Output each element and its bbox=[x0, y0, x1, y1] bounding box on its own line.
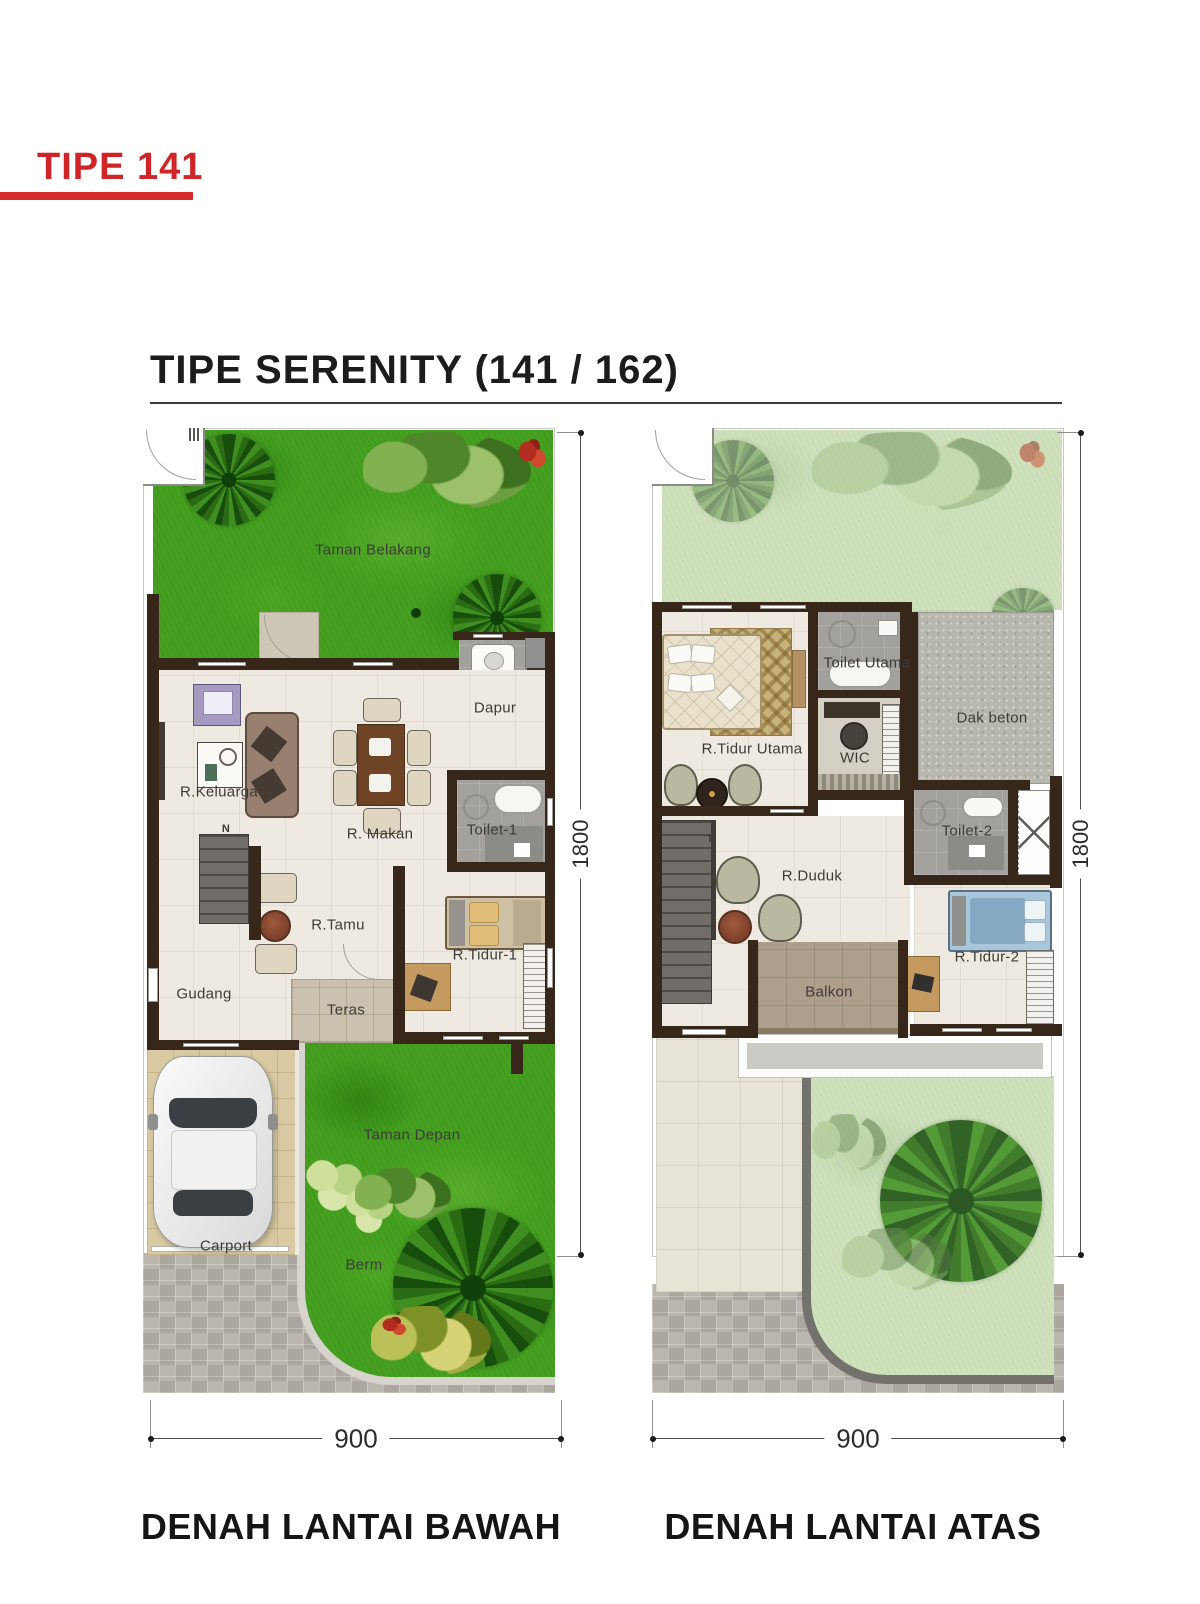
master-bed-icon bbox=[662, 634, 762, 730]
room-label-r-tidur-2: R.Tidur-2 bbox=[955, 949, 1020, 966]
dining-chair-icon bbox=[333, 730, 357, 766]
room-label-berm: Berm bbox=[345, 1257, 382, 1274]
bed-icon bbox=[948, 890, 1052, 952]
shrub-bed-icon bbox=[355, 1168, 451, 1222]
caption-upper-floor: DENAH LANTAI ATAS bbox=[664, 1506, 1041, 1548]
shrub-bed-icon bbox=[812, 1114, 886, 1172]
garden-drain-icon bbox=[411, 608, 421, 618]
window-icon bbox=[942, 1028, 982, 1032]
interior-wall bbox=[748, 940, 758, 1038]
void-shaft bbox=[1018, 790, 1050, 875]
exterior-wall bbox=[652, 602, 662, 1038]
window-icon bbox=[353, 662, 393, 666]
room-label-carport: Carport bbox=[200, 1238, 252, 1255]
shrub-bed-icon bbox=[363, 432, 531, 510]
basin-icon bbox=[840, 722, 868, 750]
interior-wall bbox=[447, 862, 555, 872]
room-label-r-duduk: R.Duduk bbox=[782, 868, 842, 885]
type-badge-underline bbox=[0, 192, 193, 200]
wardrobe-icon bbox=[1026, 950, 1054, 1028]
washbasin-icon bbox=[463, 794, 489, 820]
stairs-note-label: N bbox=[222, 823, 230, 835]
room-label-dapur: Dapur bbox=[474, 700, 516, 717]
exterior-wall bbox=[147, 658, 461, 670]
room-label-taman-depan: Taman Depan bbox=[364, 1127, 461, 1144]
wall-stub bbox=[511, 1044, 523, 1074]
window-icon bbox=[183, 1043, 239, 1047]
interior-wall bbox=[898, 940, 908, 1038]
lounge-chair-icon bbox=[716, 856, 760, 904]
lounge-chair-icon bbox=[758, 894, 802, 942]
console-icon bbox=[792, 650, 806, 708]
side-gate bbox=[143, 428, 205, 486]
window-icon bbox=[443, 1036, 483, 1040]
room-label-balkon: Balkon bbox=[805, 984, 853, 1001]
bed-icon bbox=[445, 896, 547, 950]
car-icon bbox=[153, 1056, 273, 1248]
window-icon bbox=[760, 605, 806, 609]
interior-wall bbox=[447, 770, 457, 872]
interior-wall bbox=[904, 875, 1062, 885]
dimension-width-lower: 900 bbox=[150, 1438, 562, 1439]
floor-plan-upper: R.Tidur Utama Toilet Utama WIC Dak beton… bbox=[652, 428, 1064, 1393]
lounge-chair-icon bbox=[728, 764, 762, 806]
shrub-bed-icon bbox=[842, 1228, 952, 1292]
window-icon bbox=[682, 1029, 726, 1035]
dimension-depth-lower: 1800 bbox=[580, 432, 581, 1256]
stairs-note-label: T bbox=[706, 833, 713, 845]
interior-wall bbox=[808, 612, 818, 806]
window-icon bbox=[547, 948, 553, 988]
dimension-depth-lower-value: 1800 bbox=[568, 810, 594, 879]
interior-wall bbox=[818, 690, 900, 698]
room-label-taman-belakang: Taman Belakang bbox=[315, 542, 431, 559]
shrub-bed-icon bbox=[812, 432, 1012, 512]
window-icon bbox=[547, 798, 553, 826]
toilet-fixture-icon bbox=[878, 620, 898, 636]
staircase bbox=[199, 834, 249, 924]
guest-chair-icon bbox=[255, 944, 297, 974]
floor-plan-sheet: { "page": { "badge": "TIPE 141", "title"… bbox=[0, 0, 1200, 1604]
dining-chair-icon bbox=[333, 770, 357, 806]
toilet-fixture-icon bbox=[968, 844, 986, 858]
room-label-r-keluarga: R.Keluarga bbox=[180, 784, 258, 801]
interior-wall bbox=[900, 602, 910, 794]
staircase bbox=[660, 820, 712, 1004]
dining-chair-icon bbox=[407, 730, 431, 766]
window-icon bbox=[996, 1028, 1032, 1032]
room-label-toilet-2: Toilet-2 bbox=[942, 823, 993, 840]
interior-wall bbox=[818, 790, 910, 800]
dining-chair-icon bbox=[407, 770, 431, 806]
vanity-counter-icon bbox=[824, 702, 880, 718]
lounge-chair-icon bbox=[664, 764, 698, 806]
bathtub-icon bbox=[493, 784, 543, 814]
sofa-icon bbox=[245, 712, 299, 818]
window-icon bbox=[198, 662, 246, 666]
interior-wall bbox=[910, 612, 918, 790]
guest-chair-icon bbox=[255, 873, 297, 903]
interior-wall bbox=[904, 780, 914, 885]
room-label-wic: WIC bbox=[840, 750, 870, 767]
exterior-wall bbox=[1050, 776, 1062, 888]
toilet-bowl-icon bbox=[962, 796, 1004, 818]
room-label-toilet-1: Toilet-1 bbox=[467, 822, 518, 839]
dimension-depth-upper: 1800 bbox=[1080, 432, 1081, 1256]
desk-icon bbox=[403, 963, 451, 1011]
exterior-wall bbox=[910, 1024, 1062, 1036]
window-icon bbox=[682, 605, 732, 609]
carport-divider bbox=[295, 1044, 299, 1255]
washbasin-icon bbox=[828, 620, 856, 648]
concrete-deck bbox=[918, 612, 1054, 784]
room-label-r-makan: R. Makan bbox=[347, 826, 414, 843]
dining-table-icon bbox=[357, 724, 405, 806]
stair-wall bbox=[249, 846, 261, 940]
room-label-r-tidur-utama: R.Tidur Utama bbox=[702, 741, 803, 758]
caption-lower-floor: DENAH LANTAI BAWAH bbox=[141, 1506, 561, 1548]
cabinet-icon bbox=[197, 742, 243, 788]
desk-icon bbox=[904, 956, 940, 1012]
dimension-width-lower-value: 900 bbox=[322, 1424, 389, 1455]
interior-wall bbox=[447, 770, 555, 780]
floor-plan-lower: Taman Belakang Dapur R.Keluarga R. Makan… bbox=[143, 428, 555, 1393]
side-table-icon bbox=[259, 910, 291, 942]
window-icon bbox=[148, 968, 158, 1002]
side-table-icon bbox=[718, 910, 752, 944]
dimension-width-upper: 900 bbox=[652, 1438, 1064, 1439]
interior-wall bbox=[1008, 780, 1018, 885]
tv-cabinet-icon bbox=[193, 684, 241, 726]
interior-wall bbox=[393, 866, 405, 1044]
window-icon bbox=[499, 1036, 529, 1040]
plan-title-underline bbox=[150, 402, 1062, 404]
dimension-depth-upper-value: 1800 bbox=[1068, 810, 1094, 879]
room-label-r-tidur-1: R.Tidur-1 bbox=[453, 947, 518, 964]
door-opening bbox=[770, 809, 804, 813]
room-label-toilet-utama: Toilet Utama bbox=[824, 655, 911, 672]
dining-chair-icon bbox=[363, 698, 401, 722]
room-label-r-tamu: R.Tamu bbox=[311, 917, 364, 934]
room-label-dak-beton: Dak beton bbox=[956, 710, 1027, 727]
window-icon bbox=[473, 634, 503, 638]
room-label-gudang: Gudang bbox=[176, 986, 231, 1003]
type-badge: TIPE 141 bbox=[37, 146, 203, 189]
room-label-teras: Teras bbox=[327, 1002, 365, 1019]
side-gate bbox=[652, 428, 714, 486]
dimension-width-upper-value: 900 bbox=[824, 1424, 891, 1455]
closet-icon bbox=[882, 704, 900, 776]
plan-title: TIPE SERENITY (141 / 162) bbox=[150, 348, 679, 393]
toilet-fixture-icon bbox=[513, 842, 531, 858]
roof-ledge bbox=[738, 1034, 1052, 1078]
